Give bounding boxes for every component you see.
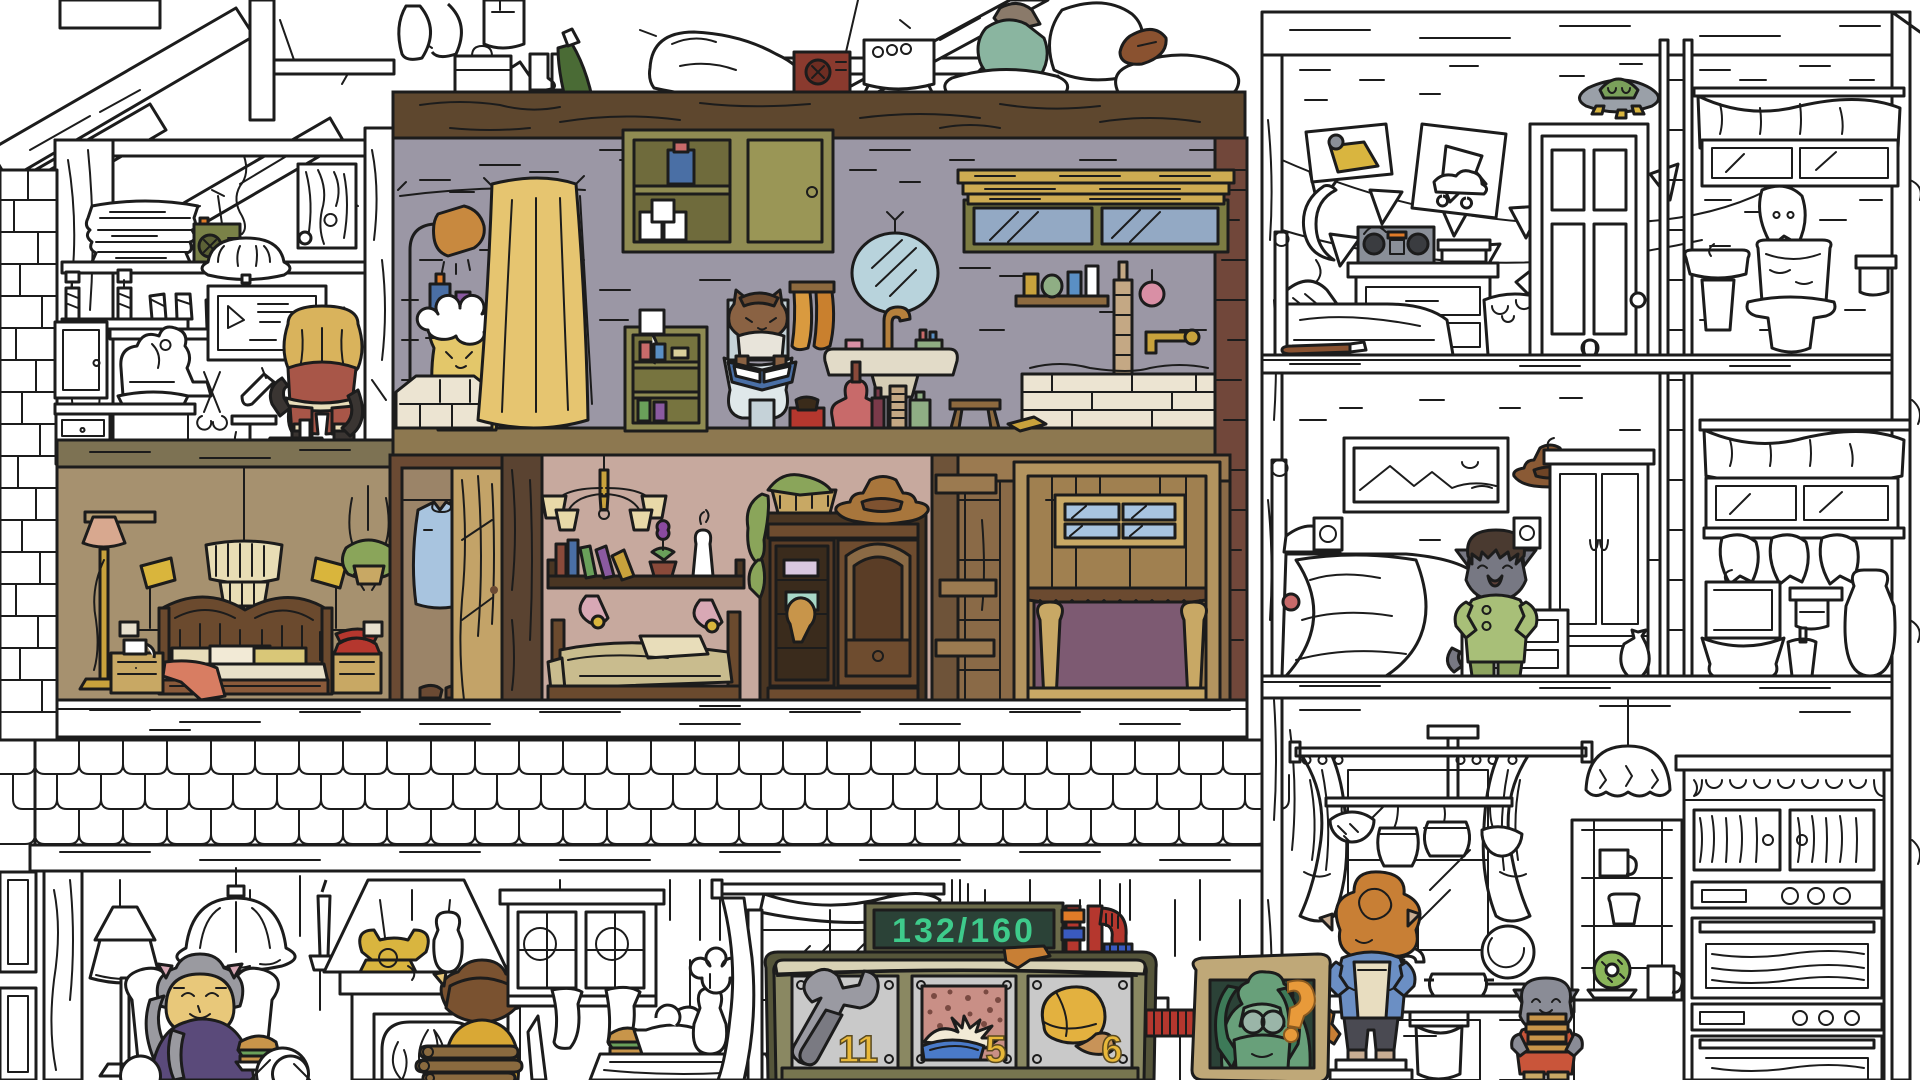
svg-text:6: 6 bbox=[1101, 1029, 1122, 1071]
svg-text:5: 5 bbox=[985, 1029, 1006, 1071]
svg-text:11: 11 bbox=[838, 1029, 878, 1071]
svg-text:132/160: 132/160 bbox=[892, 912, 1036, 950]
